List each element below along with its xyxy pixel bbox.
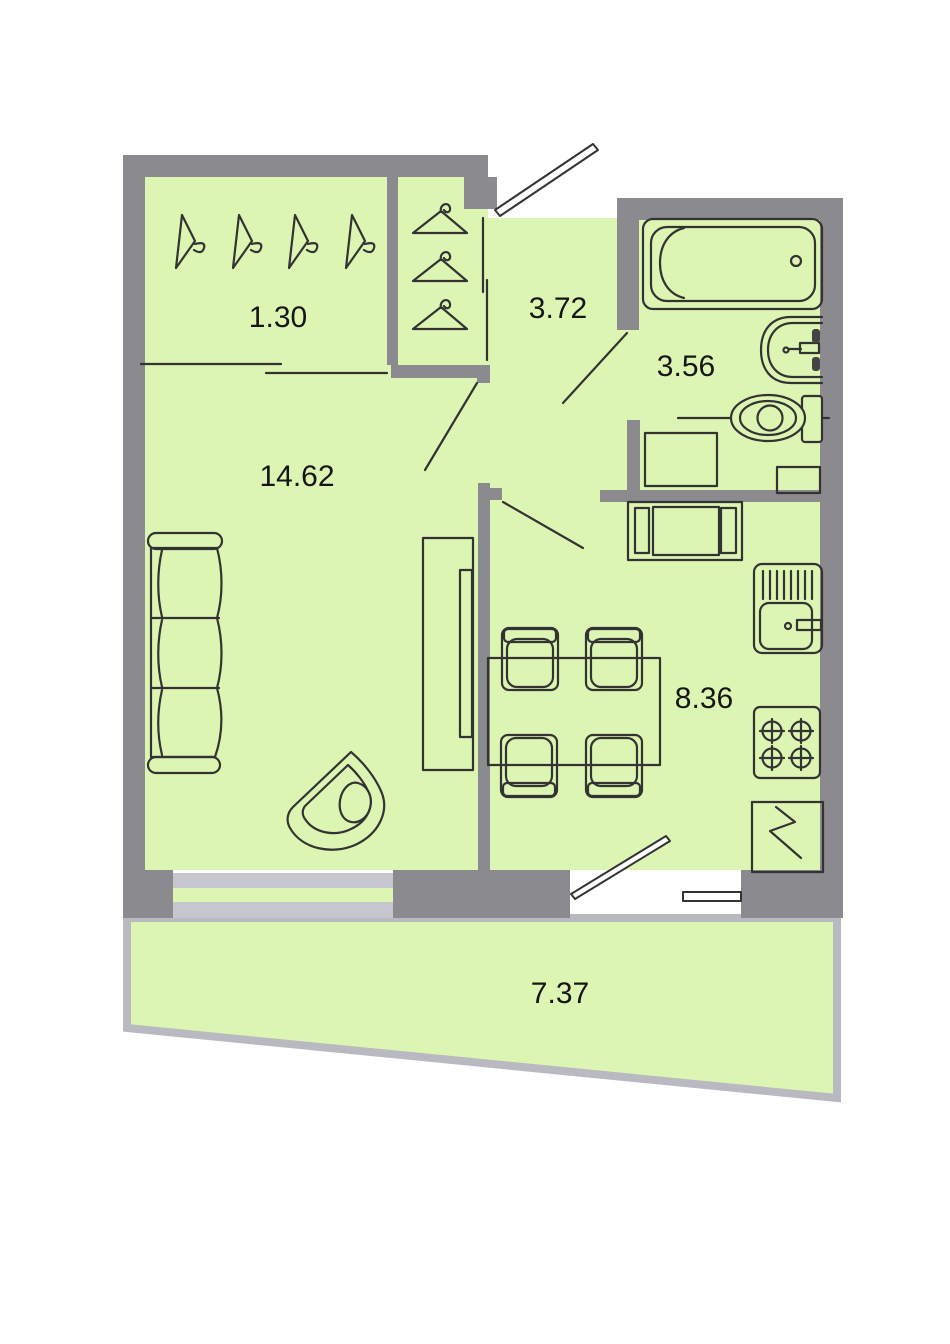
entrance-door-leaf [495,144,598,216]
wall-bathroom-bottom [600,490,820,502]
wall-bottom-right [741,870,840,918]
washbasin-soap-tray [812,357,820,371]
balcony-door-leaf-closed [683,892,741,901]
wall-bathroom-left-lower [627,420,640,492]
wall-left [123,155,145,918]
washbasin-soap-tray [812,329,820,343]
window-pane [173,888,393,902]
wall-top-right [617,198,843,220]
wall-entry-jamb [464,177,497,209]
wall-bottom-middle [393,870,570,918]
window-inner-frame [173,902,393,918]
bathroom-area-label: 3.56 [657,350,715,383]
window-outer-frame [173,873,393,888]
wardrobe-area-label: 1.30 [249,301,307,334]
wall-wardrobe-divider [387,177,398,365]
balcony-area-label: 7.37 [531,977,589,1010]
kitchen-area-label: 8.36 [675,682,733,715]
wall-bottom-left [123,870,173,918]
wall-bathroom-left-upper [617,220,639,330]
wall-top-left [123,155,488,177]
armchair-seat-cushion [340,783,371,823]
living-room-area-label: 14.62 [259,460,334,493]
wall-closet-bottom [391,365,490,378]
floor-plan-page: 1.30 3.72 3.56 14.62 8.36 7.37 [0,0,950,1344]
wall-kitchen-door-jamb [490,488,502,500]
window [173,873,393,918]
balcony-floor [127,918,837,1098]
wall-closet-stub [477,365,490,383]
hallway-area-label: 3.72 [529,292,587,325]
floor-plan-drawing: 1.30 3.72 3.56 14.62 8.36 7.37 [0,0,950,1344]
